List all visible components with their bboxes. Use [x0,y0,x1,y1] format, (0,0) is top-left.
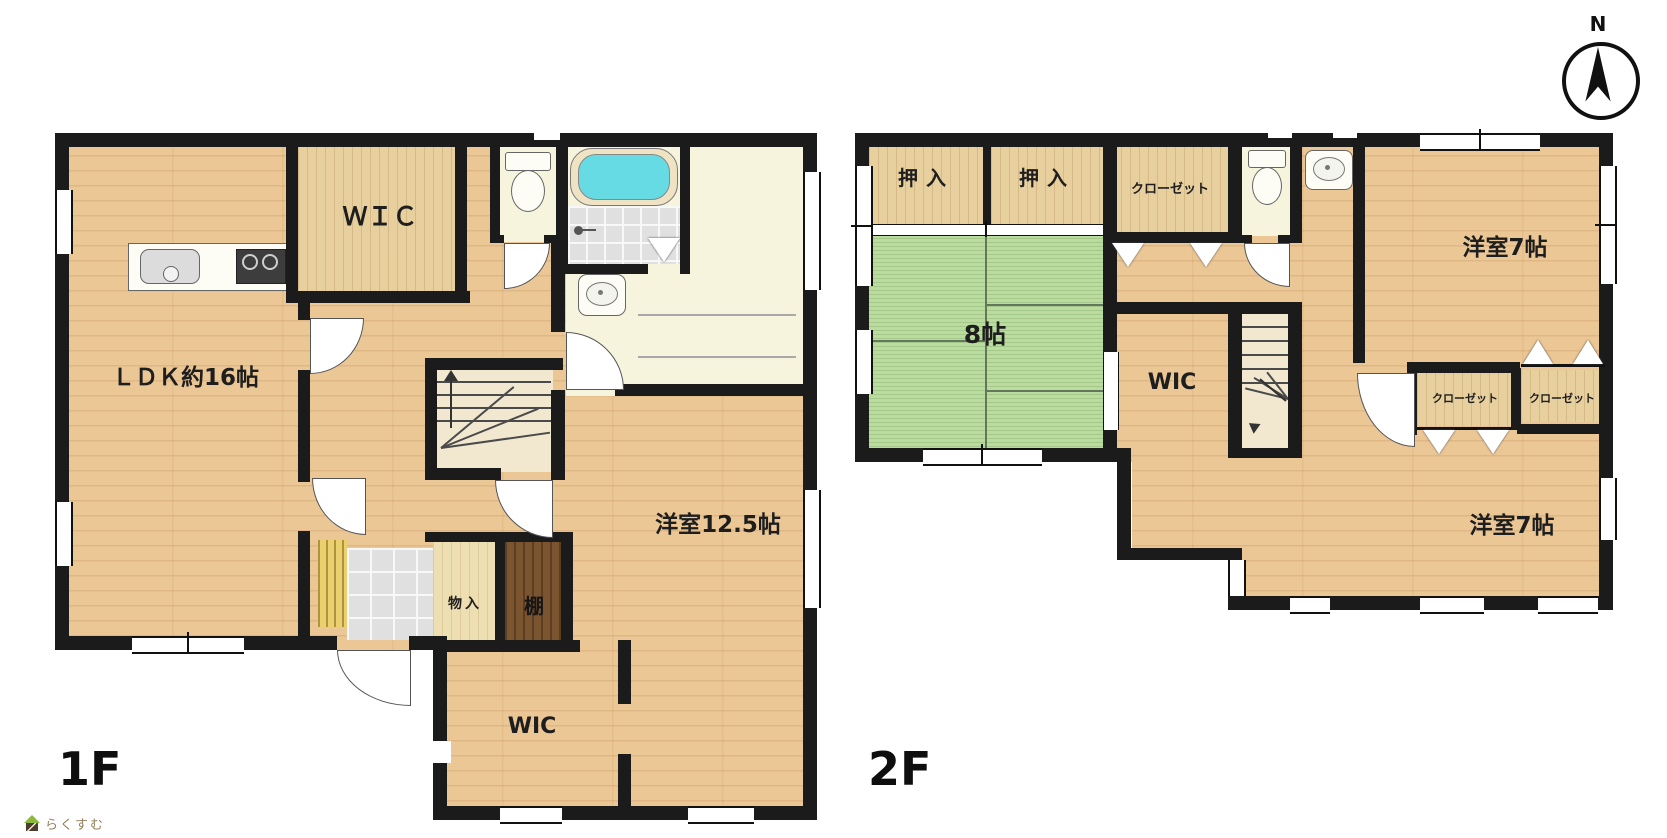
wall [618,754,631,814]
wall [615,384,805,396]
closet-door-icon [1523,340,1553,364]
floor2-label: 2F [868,742,978,796]
floor-plan-canvas: ＬＤＫ約16帖 ＷＩＣ 洋室12.5帖 物入 棚 WIC 1F [0,0,1667,838]
room-label-wic-top: ＷＩＣ [315,197,445,233]
sliding-door-tick [985,221,987,237]
wall [55,133,817,147]
wall [1117,548,1236,560]
wall [490,133,500,243]
washbasin-drain-icon [598,290,603,295]
wall [1105,302,1302,314]
wall [455,133,467,291]
stair-tread [1242,326,1288,328]
wall [983,133,991,224]
room-label-yoshitsu-bottom: 洋室7帖 [1412,506,1612,540]
wall [425,358,563,370]
kitchen-faucet-icon [163,266,179,282]
room-label-tana: 棚 [505,590,563,619]
logo-house-icon [24,815,40,831]
stove-burner-icon [262,254,278,270]
stair-tread [1242,340,1288,342]
stair-tread [1242,368,1288,370]
wall [618,640,631,704]
wall [680,133,690,274]
wall [1228,448,1302,458]
room-label-yoshitsu-top: 洋室7帖 [1405,228,1605,262]
shower-arm-icon [582,229,596,231]
toilet-bowl-icon [1252,167,1282,205]
closet-door-icon [1477,430,1509,454]
room-label-closet-top: クローゼット [1106,178,1234,197]
wall [1278,235,1302,243]
window-tick [1595,224,1617,226]
wall [433,636,447,820]
washroom-shelf-line [638,314,796,316]
wall [425,358,437,480]
f2-outside-cutout [1132,560,1228,638]
wall [1288,307,1302,455]
bathtub-water [578,154,670,200]
wall [1511,368,1521,430]
room-label-closet-right: クローゼット [1521,390,1603,406]
window [855,330,873,394]
stair-tread [437,394,551,396]
stair-up-arrowhead-icon [444,370,458,381]
room-label-oshiire-right: 押入 [991,162,1103,191]
wall [1103,232,1242,243]
room-label-yoshitsu: 洋室12.5帖 [618,505,818,539]
window-tick [851,225,873,227]
stair-tread [437,420,551,422]
f2-outside-cutout [848,462,1132,638]
washroom-shelf-line [638,356,796,358]
compass-north-label: N [1584,12,1612,36]
room-label-closet-left: クローゼット [1419,390,1511,406]
floor1-label: 1F [58,742,168,796]
wall [495,532,505,640]
toilet-tank-icon [1248,150,1286,168]
closet-door-icon [1423,430,1455,454]
window [55,502,73,566]
logo: らくすむ [24,814,105,832]
logo-text: らくすむ [45,814,105,833]
wall [1117,448,1131,560]
wall [286,291,470,303]
closet-door-icon [1573,340,1603,364]
toilet-tank-icon [505,152,551,171]
window-tick [1479,129,1481,151]
window [500,806,562,824]
window [1420,596,1484,614]
stove-burner-icon [242,254,258,270]
wall [425,468,501,480]
closet-door-icon [1112,243,1144,267]
bath-folding-door-icon [648,238,680,262]
vent-icon [1268,118,1292,138]
f1-genkan-step-board [318,540,347,627]
wall [1242,235,1252,243]
closet-divider-line [1521,364,1605,367]
f1-genkan-tile [347,548,435,640]
window [1290,596,1330,614]
window-tick [981,444,983,466]
wall [286,133,298,303]
window [55,190,73,254]
window [688,806,754,824]
washbasin-drain-icon [1325,165,1330,170]
wall [1353,147,1365,363]
stair-tread [1242,354,1288,356]
window [803,172,821,290]
wall [1228,302,1242,455]
stair-tread [437,381,551,383]
wall [556,264,648,274]
wall [490,235,504,243]
room-label-oshiire-left: 押入 [869,162,983,191]
f1-monoire-floor [433,540,497,640]
toilet-bowl-icon [511,170,545,212]
wall [1407,362,1520,373]
room-label-tatami: 8帖 [935,315,1035,351]
window [1538,596,1598,614]
window-tick [187,632,189,654]
room-label-wic2: WIC [1117,370,1227,395]
wall [298,531,310,640]
stair-up-arrow-icon [450,378,452,428]
wall [1290,133,1302,235]
room-label-monoire: 物入 [433,593,497,613]
wall [1517,424,1605,434]
room-label-wic-bottom: WIC [472,714,592,739]
room-label-ldk: ＬＤＫ約16帖 [88,358,283,392]
wall [447,640,580,652]
closet-door-icon [1190,243,1222,267]
tatami-seam [986,304,1103,306]
vent-icon [534,118,560,140]
wall [551,390,565,480]
vent-icon [1333,118,1357,138]
tatami-seam [986,390,1103,392]
wall [298,370,310,482]
wall [551,240,565,332]
wall [561,532,573,640]
window [1228,560,1246,596]
